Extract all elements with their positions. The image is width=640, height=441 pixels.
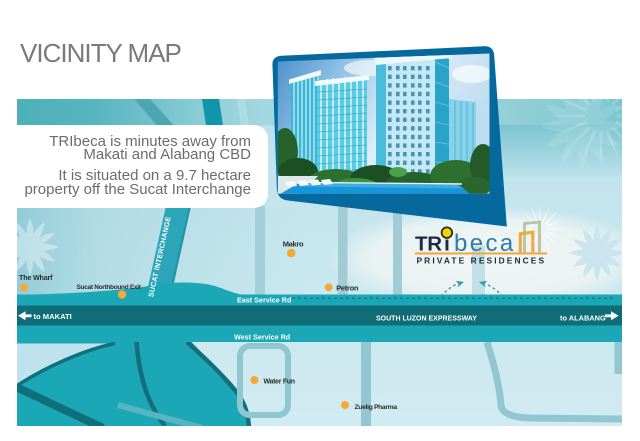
svg-text:The Wharf: The Wharf (19, 273, 53, 282)
svg-text:Zuelig Pharma: Zuelig Pharma (355, 404, 398, 411)
svg-text:Makro: Makro (283, 240, 304, 249)
svg-text:SOUTH LUZON EXPRESSWAY: SOUTH LUZON EXPRESSWAY (376, 316, 477, 323)
svg-text:TR: TR (415, 233, 442, 256)
svg-text:PRIVATE RESIDENCES: PRIVATE RESIDENCES (417, 256, 547, 266)
svg-text:Sucat Northbound Exit: Sucat Northbound Exit (77, 284, 142, 291)
svg-text:to MAKATI: to MAKATI (34, 312, 72, 321)
svg-text:Water Fun: Water Fun (264, 379, 295, 386)
svg-text:Petron: Petron (336, 283, 359, 292)
svg-text:East Service Rd: East Service Rd (237, 296, 291, 305)
svg-text:West Service Rd: West Service Rd (234, 333, 290, 342)
svg-text:to ALABANG: to ALABANG (560, 313, 606, 322)
